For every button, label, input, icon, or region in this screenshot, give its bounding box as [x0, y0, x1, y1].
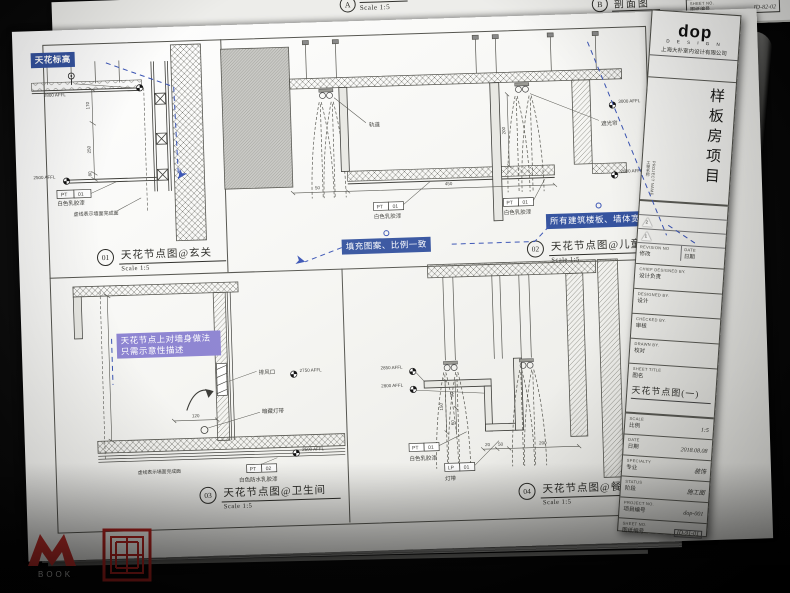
detail-b-bubble: B — [592, 0, 609, 12]
detail-a-bubble: A — [339, 0, 356, 13]
prev-detail-a: A 剖面图 Scale 1:5 — [339, 0, 407, 13]
leader-ceiling-level — [106, 61, 179, 181]
mbook-text: BOOK — [38, 570, 73, 579]
leader-to-strip — [668, 224, 697, 245]
anchor-dot-1 — [384, 231, 389, 236]
detail-a-scale: Scale 1:5 — [360, 1, 408, 12]
red-seal-watermark — [102, 528, 152, 582]
leader-purple — [112, 339, 113, 385]
cursor-arrow-2 — [292, 254, 305, 267]
seal-pattern — [102, 528, 152, 582]
prev-sheet-no-value: ID-82-02 — [754, 4, 777, 11]
photo-of-drawing-book: A 剖面图 Scale 1:5 B 剖面图 Scale 1:5 项目编号 dop… — [0, 0, 790, 593]
leader-fill-right — [451, 225, 550, 244]
mbook-watermark: BOOK — [24, 530, 96, 588]
mbook-m-logo — [24, 530, 96, 570]
review-markup-overlay — [12, 8, 773, 561]
leader-fill-left — [305, 248, 342, 262]
drawing-sheet: 2800 AFFL 170 250 80 2500 AFFL PT 01 白色乳… — [12, 8, 773, 561]
anchor-dot-2 — [596, 203, 601, 208]
